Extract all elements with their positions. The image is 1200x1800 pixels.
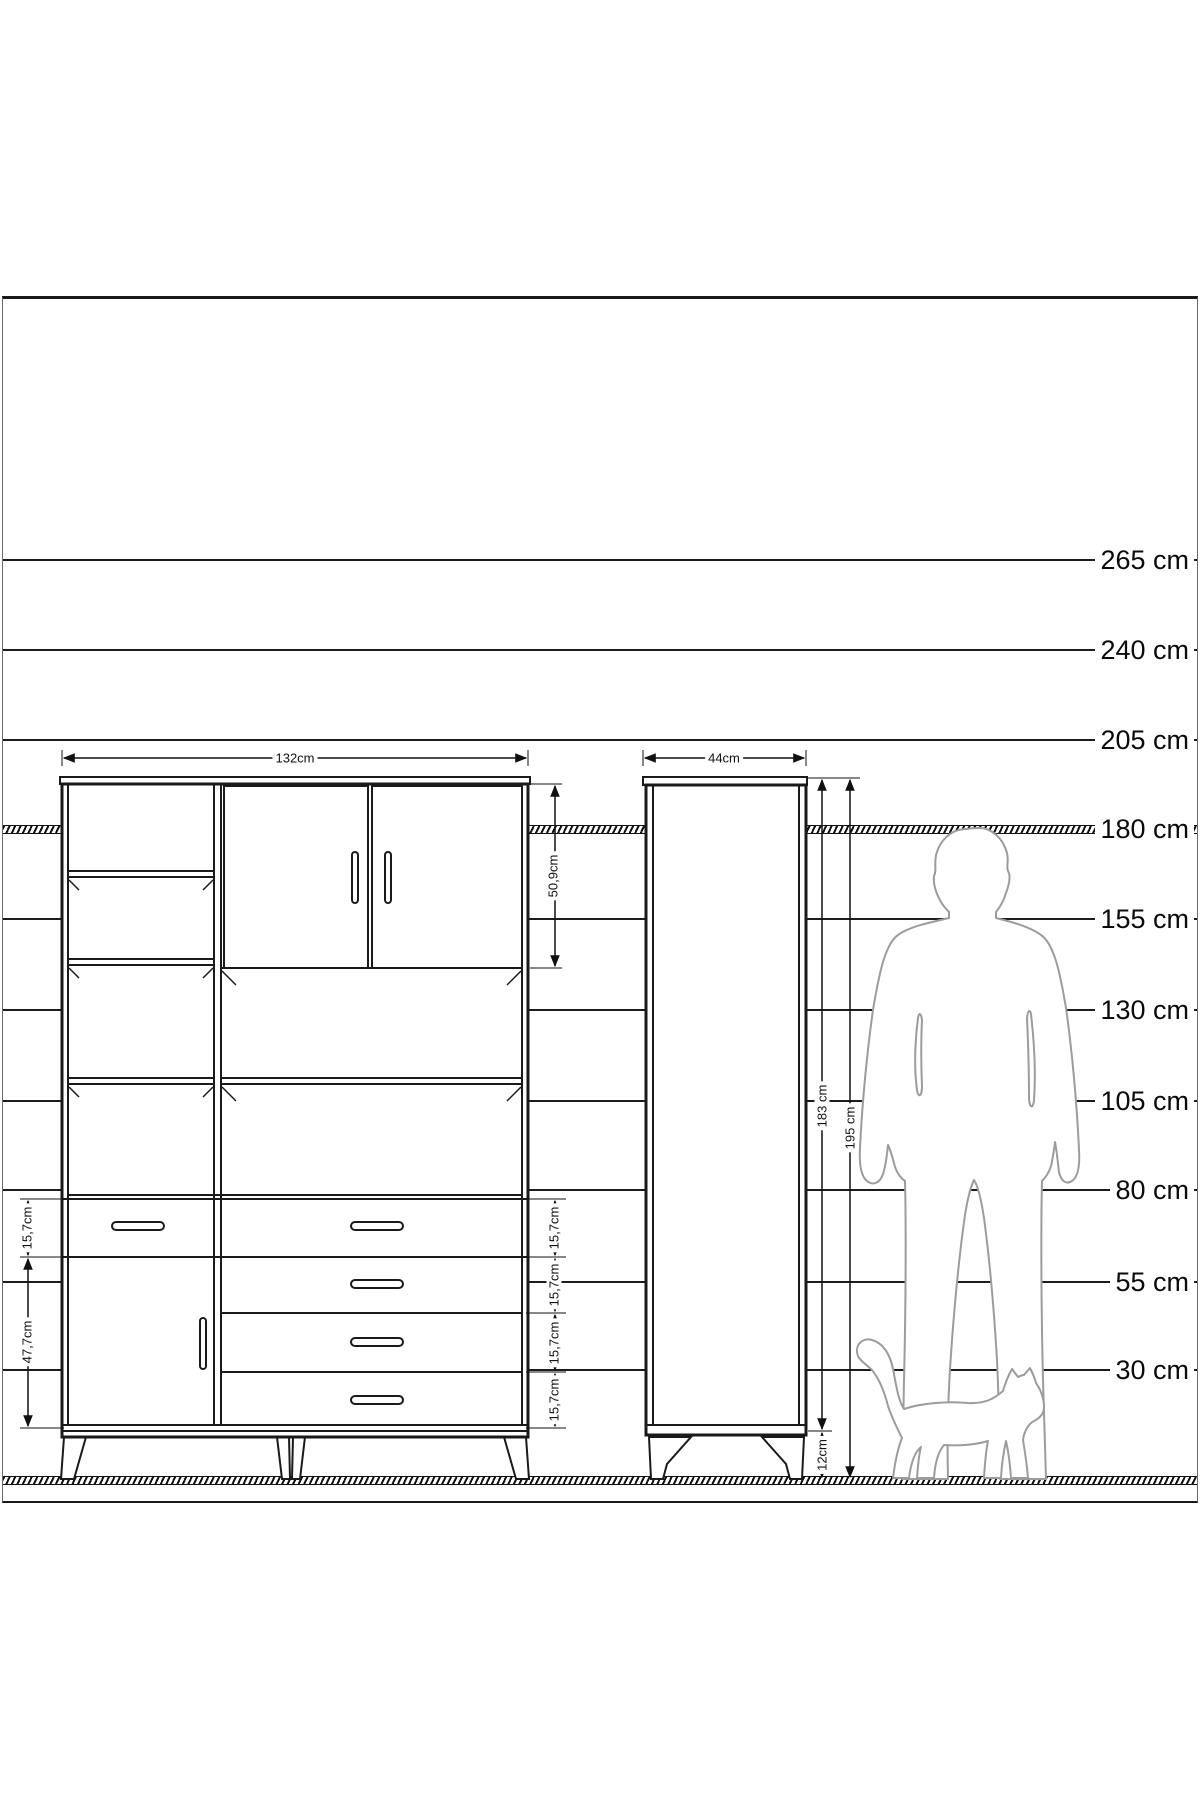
drawer-handle-icon bbox=[351, 1222, 403, 1230]
tall-leg-height-label: 12cm bbox=[815, 1436, 830, 1474]
door-handle-icon bbox=[385, 852, 391, 903]
upper-door-left bbox=[224, 786, 368, 968]
scale-label-105: 105 cm bbox=[1095, 1087, 1194, 1115]
tall-cabinet-drawing bbox=[643, 777, 807, 1479]
wide-cabinet-drawing bbox=[60, 777, 530, 1479]
drawer-handle-icon bbox=[351, 1280, 403, 1288]
scale-label-205: 205 cm bbox=[1095, 726, 1194, 754]
tall-cabinet-width-label: 44cm bbox=[705, 751, 743, 766]
scale-label-240: 240 cm bbox=[1095, 636, 1194, 664]
dimension-diagram: 265 cm 240 cm 205 cm 180 cm 155 cm 130 c… bbox=[0, 0, 1200, 1800]
drawing-geometry bbox=[0, 0, 1200, 1800]
door-handle-icon bbox=[200, 1318, 206, 1369]
drawer-handle-icon bbox=[112, 1222, 164, 1230]
scale-label-30: 30 cm bbox=[1110, 1356, 1194, 1384]
drawer-height-label-3: 15,7cm bbox=[547, 1319, 562, 1368]
scale-label-265: 265 cm bbox=[1095, 546, 1194, 574]
upper-section-height-label: 50,9cm bbox=[546, 852, 561, 901]
scale-label-130: 130 cm bbox=[1095, 996, 1194, 1024]
tall-body-height-label: 183 cm bbox=[815, 1082, 830, 1131]
drawer-height-label-4: 15,7cm bbox=[547, 1376, 562, 1425]
drawer-height-label-2: 15,7cm bbox=[547, 1261, 562, 1310]
drawer-handle-icon bbox=[351, 1396, 403, 1404]
drawer-height-label-1: 15,7cm bbox=[547, 1204, 562, 1253]
tall-total-height-label: 195 cm bbox=[843, 1104, 858, 1153]
scale-label-155: 155 cm bbox=[1095, 905, 1194, 933]
upper-door-right bbox=[372, 786, 522, 968]
scale-label-55: 55 cm bbox=[1110, 1268, 1194, 1296]
drawer-handle-icon bbox=[351, 1338, 403, 1346]
left-top-drawer-label: 15,7cm bbox=[20, 1204, 35, 1253]
scale-label-80: 80 cm bbox=[1110, 1176, 1194, 1204]
door-handle-icon bbox=[352, 852, 358, 903]
left-door-height-label: 47,7cm bbox=[20, 1318, 35, 1367]
scale-label-180: 180 cm bbox=[1095, 815, 1194, 843]
wide-cabinet-width-label: 132cm bbox=[272, 751, 317, 766]
